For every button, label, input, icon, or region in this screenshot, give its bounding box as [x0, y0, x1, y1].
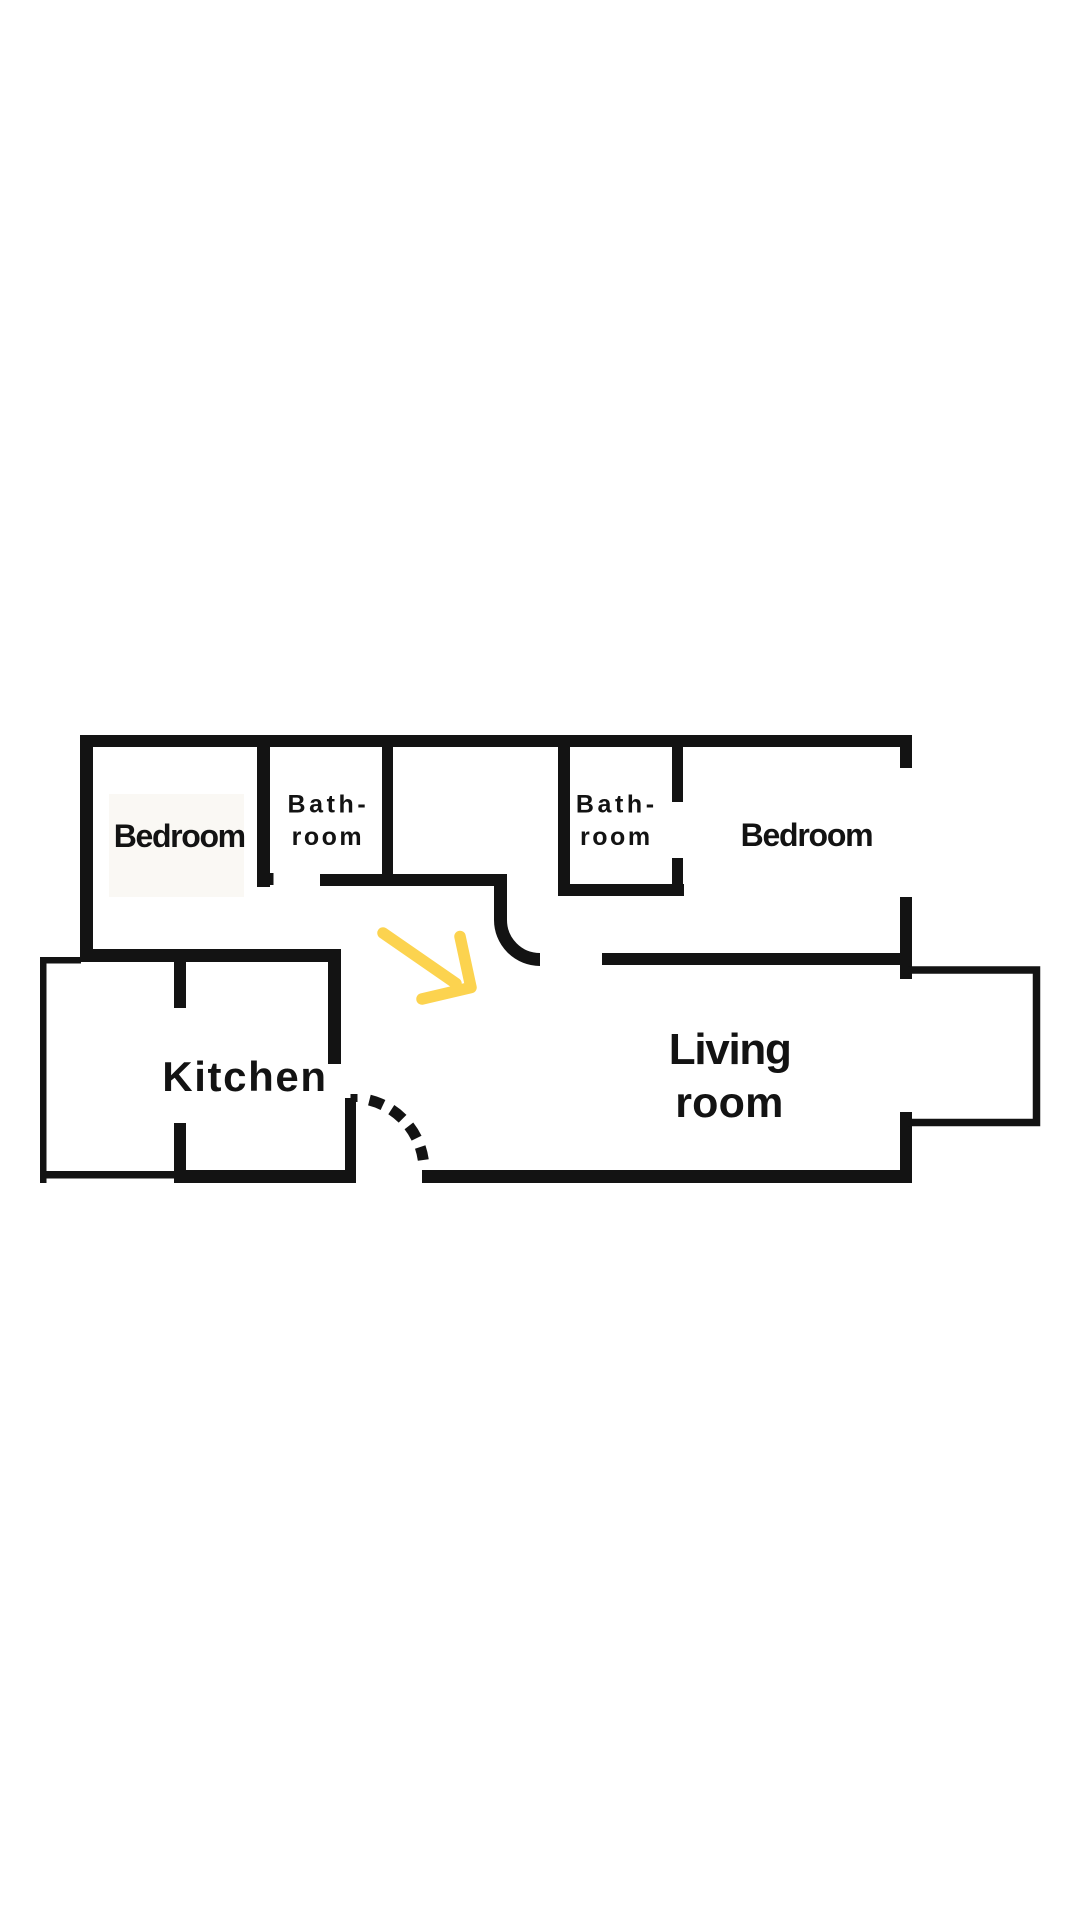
- svg-text:Living: Living: [669, 1025, 791, 1074]
- svg-text:room: room: [675, 1079, 783, 1127]
- svg-text:Kitchen: Kitchen: [162, 1053, 327, 1100]
- svg-text:Bedroom: Bedroom: [114, 818, 245, 854]
- svg-text:Bath-: Bath-: [576, 791, 658, 819]
- svg-text:room: room: [580, 823, 653, 851]
- svg-text:Bath-: Bath-: [287, 791, 369, 819]
- svg-text:Bedroom: Bedroom: [741, 817, 873, 853]
- svg-text:room: room: [292, 823, 365, 851]
